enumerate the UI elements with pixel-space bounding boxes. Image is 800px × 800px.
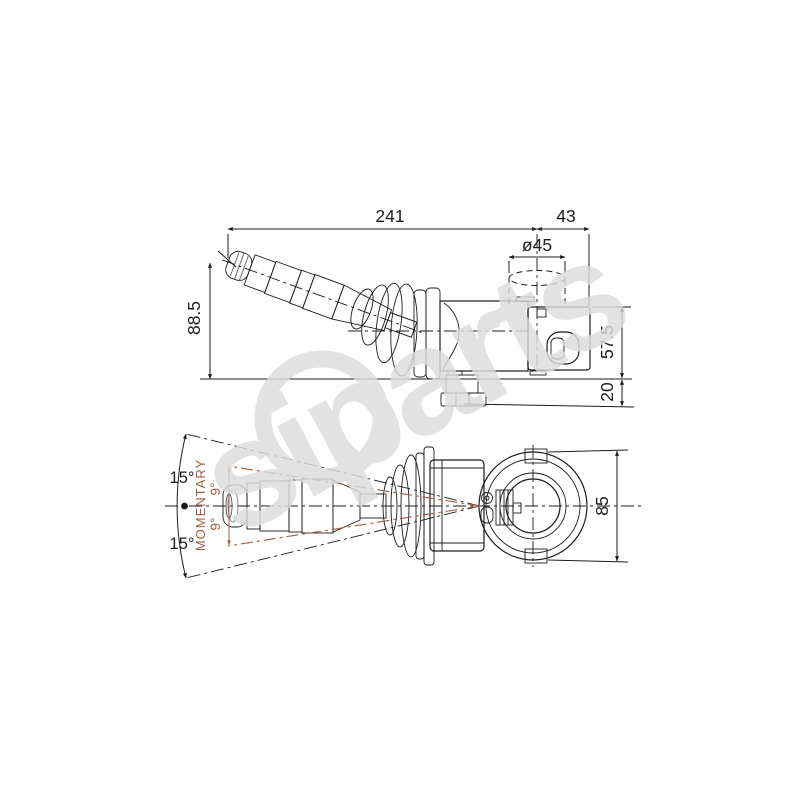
dim-label-88-5: 88.5 — [184, 301, 204, 335]
clamp-lug-top — [525, 449, 547, 463]
clamp-lug-bottom — [525, 549, 547, 563]
watermark: siparts — [173, 206, 650, 566]
angle-label-15-top: 15° — [170, 469, 195, 487]
dim-label-85: 85 — [592, 496, 612, 515]
handle-knurl-band-1 — [264, 261, 301, 302]
angle-label-15-bottom: 15° — [170, 535, 195, 553]
dim-label-241: 241 — [375, 206, 404, 226]
dim-height-88-5: 88.5 — [184, 251, 236, 379]
angle-label-9-top: 9° — [208, 483, 223, 496]
dim-label-20: 20 — [597, 382, 617, 402]
momentary-label: MOMENTARY — [193, 459, 208, 551]
handle-collar — [244, 255, 276, 293]
watermark-text: siparts — [173, 206, 650, 566]
joystick-controller-drawing: 241 43 ø45 — [0, 0, 800, 800]
technical-drawing-page: 241 43 ø45 — [0, 0, 800, 800]
angle-label-9-bottom: 9° — [208, 518, 223, 531]
